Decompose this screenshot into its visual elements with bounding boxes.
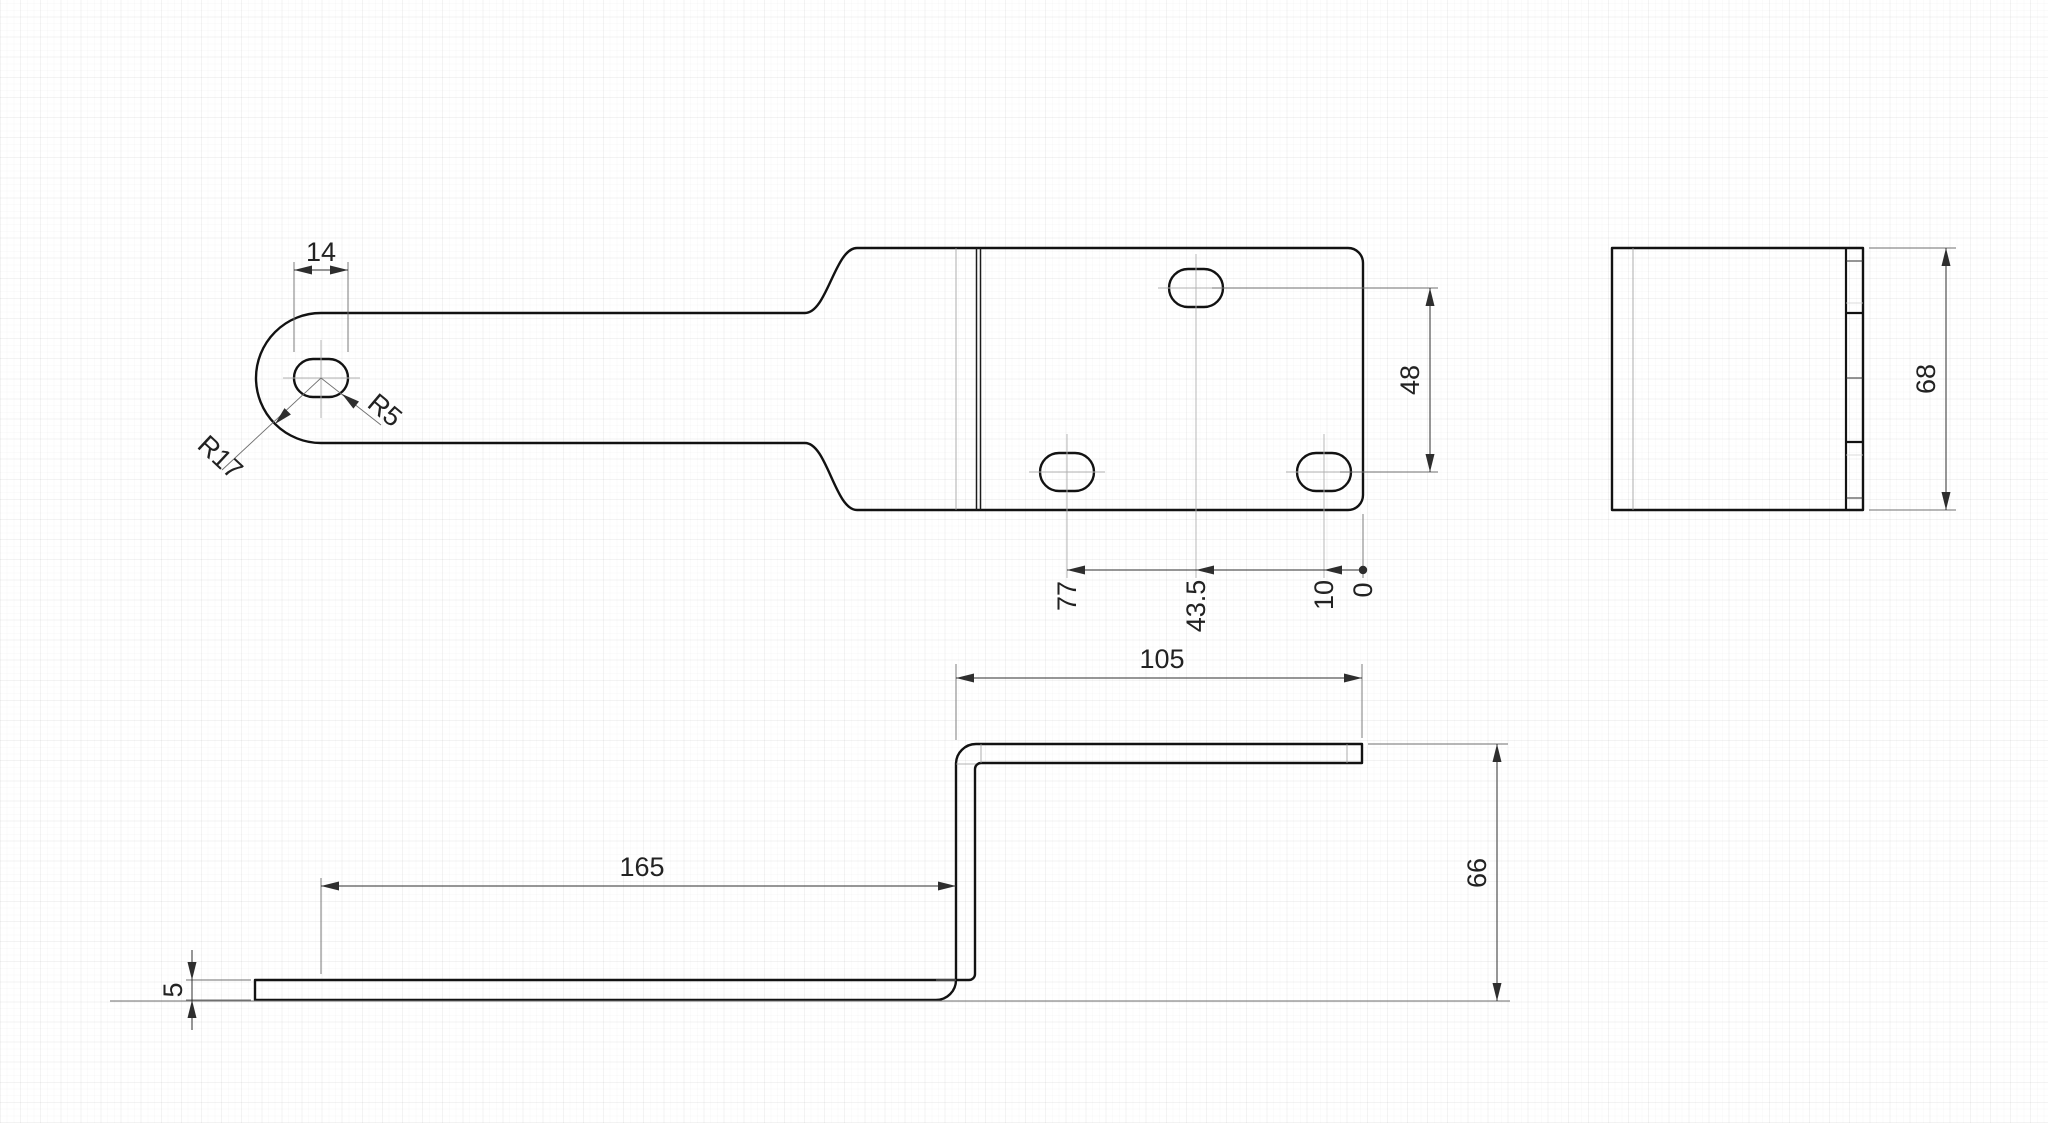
ordinate-arrow-10	[1324, 566, 1342, 575]
plan-outline	[256, 248, 1363, 510]
dim-5-text: 5	[158, 982, 188, 997]
ordinate-arrow-43-5	[1196, 566, 1214, 575]
dim-14-text: 14	[306, 237, 336, 267]
dim-68-arrow-top	[1942, 248, 1951, 266]
dim-48-text: 48	[1395, 365, 1425, 395]
dim-165-arrow-left	[321, 882, 339, 891]
ordinate-43-5-text: 43.5	[1181, 580, 1211, 633]
dim-hole-row-offset: 48	[1212, 288, 1438, 472]
dim-66-text: 66	[1462, 858, 1492, 888]
dim-105-text: 105	[1139, 644, 1184, 674]
dim-5-arrow-bottom	[188, 1000, 197, 1018]
plan-view: 14 R5 R17 48	[192, 237, 1438, 632]
side-outline	[1612, 248, 1863, 510]
ordinate-arrow-77	[1067, 566, 1085, 575]
dim-105-arrow-right	[1344, 674, 1362, 683]
drawing-canvas: 14 R5 R17 48	[0, 0, 2048, 1123]
dim-68-arrow-bottom	[1942, 492, 1951, 510]
dim-r17-text: R17	[192, 429, 249, 485]
dim-165-text: 165	[619, 852, 664, 882]
ordinate-77-text: 77	[1052, 581, 1082, 611]
dim-bottom-flange-165: 165	[321, 852, 956, 974]
dim-slot-radius: R5	[321, 378, 408, 433]
ordinate-origin-dot	[1359, 566, 1367, 574]
dim-r17-arrow	[275, 408, 291, 424]
dim-5-arrow-top	[188, 962, 197, 980]
dim-r5-arrow	[342, 394, 359, 409]
dim-thickness-5: 5	[158, 950, 251, 1030]
dim-r5-text: R5	[362, 388, 408, 433]
dim-66-arrow-top	[1493, 744, 1502, 762]
ordinate-0-text: 0	[1348, 582, 1378, 597]
dim-48-arrow-bottom	[1426, 454, 1435, 472]
dim-68-text: 68	[1911, 364, 1941, 394]
ordinate-dimensions: 77 43.5 10 0	[1052, 514, 1378, 632]
bracket-drawing: 14 R5 R17 48	[0, 0, 2048, 1123]
dim-height-66: 66	[1368, 744, 1508, 1001]
dim-165-arrow-right	[938, 882, 956, 891]
front-outline	[255, 744, 1362, 1000]
side-view: 68	[1612, 248, 1956, 510]
dim-105-arrow-left	[956, 674, 974, 683]
front-view: 105 165 66 5	[110, 644, 1510, 1030]
dim-66-arrow-bottom	[1493, 983, 1502, 1001]
dim-top-flange-105: 105	[956, 644, 1362, 740]
dim-48-arrow-top	[1426, 288, 1435, 306]
dim-width-68: 68	[1869, 248, 1956, 510]
ordinate-10-text: 10	[1309, 580, 1339, 610]
dim-slot-width: 14	[294, 237, 348, 352]
